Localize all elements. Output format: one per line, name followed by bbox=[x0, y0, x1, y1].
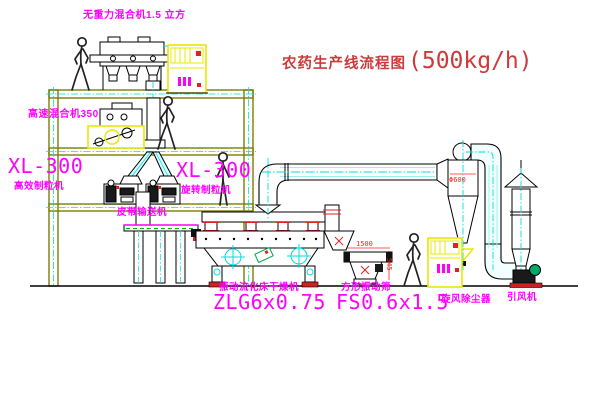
label-granulator-mid-name: 旋转制粒机 bbox=[181, 186, 231, 196]
diagram-canvas: 农药生产线流程图 (500kg/h) 无重力混合机1.5 立方 高速混合机350… bbox=[0, 0, 600, 403]
person-figure bbox=[158, 97, 175, 149]
label-belt-conveyor: 皮带输送机 bbox=[117, 208, 167, 218]
label-fan: 引风机 bbox=[507, 293, 537, 303]
label-granulator-mid-model: XL-300 bbox=[176, 160, 251, 180]
label-cyclone: 旋风除尘器 bbox=[441, 295, 491, 305]
dryer-exhaust-duct bbox=[256, 158, 440, 220]
label-granulator-left-model: XL-300 bbox=[8, 156, 83, 176]
label-high-speed-mixer: 高速混合机350 bbox=[28, 110, 99, 120]
label-dryer-model: ZLG6x0.75 bbox=[213, 292, 326, 312]
title-text: 农药生产线流程图 bbox=[282, 52, 406, 73]
label-granulator-left-name: 高效制粒机 bbox=[14, 182, 64, 192]
mixer-drop-duct bbox=[142, 98, 165, 148]
control-cabinet-upper bbox=[166, 45, 208, 93]
dimension-sieve-length: 1500 bbox=[356, 241, 373, 248]
title-capacity: (500kg/h) bbox=[408, 48, 533, 74]
label-no-gravity-mixer: 无重力混合机1.5 立方 bbox=[83, 11, 186, 21]
belt-conveyor-machine bbox=[124, 225, 201, 283]
dimension-sieve-height: 545 bbox=[385, 258, 392, 271]
fluid-bed-dryer bbox=[196, 205, 354, 287]
control-cabinet-lower bbox=[428, 238, 462, 287]
granulator-right bbox=[146, 176, 180, 204]
person-figure bbox=[72, 38, 89, 90]
dimension-cyclone-diameter: Φ600 bbox=[449, 177, 466, 184]
person-figure bbox=[404, 234, 421, 286]
diagram-title: 农药生产线流程图 (500kg/h) bbox=[282, 48, 533, 74]
label-sieve-model: FS0.6x1.5 bbox=[336, 292, 449, 312]
